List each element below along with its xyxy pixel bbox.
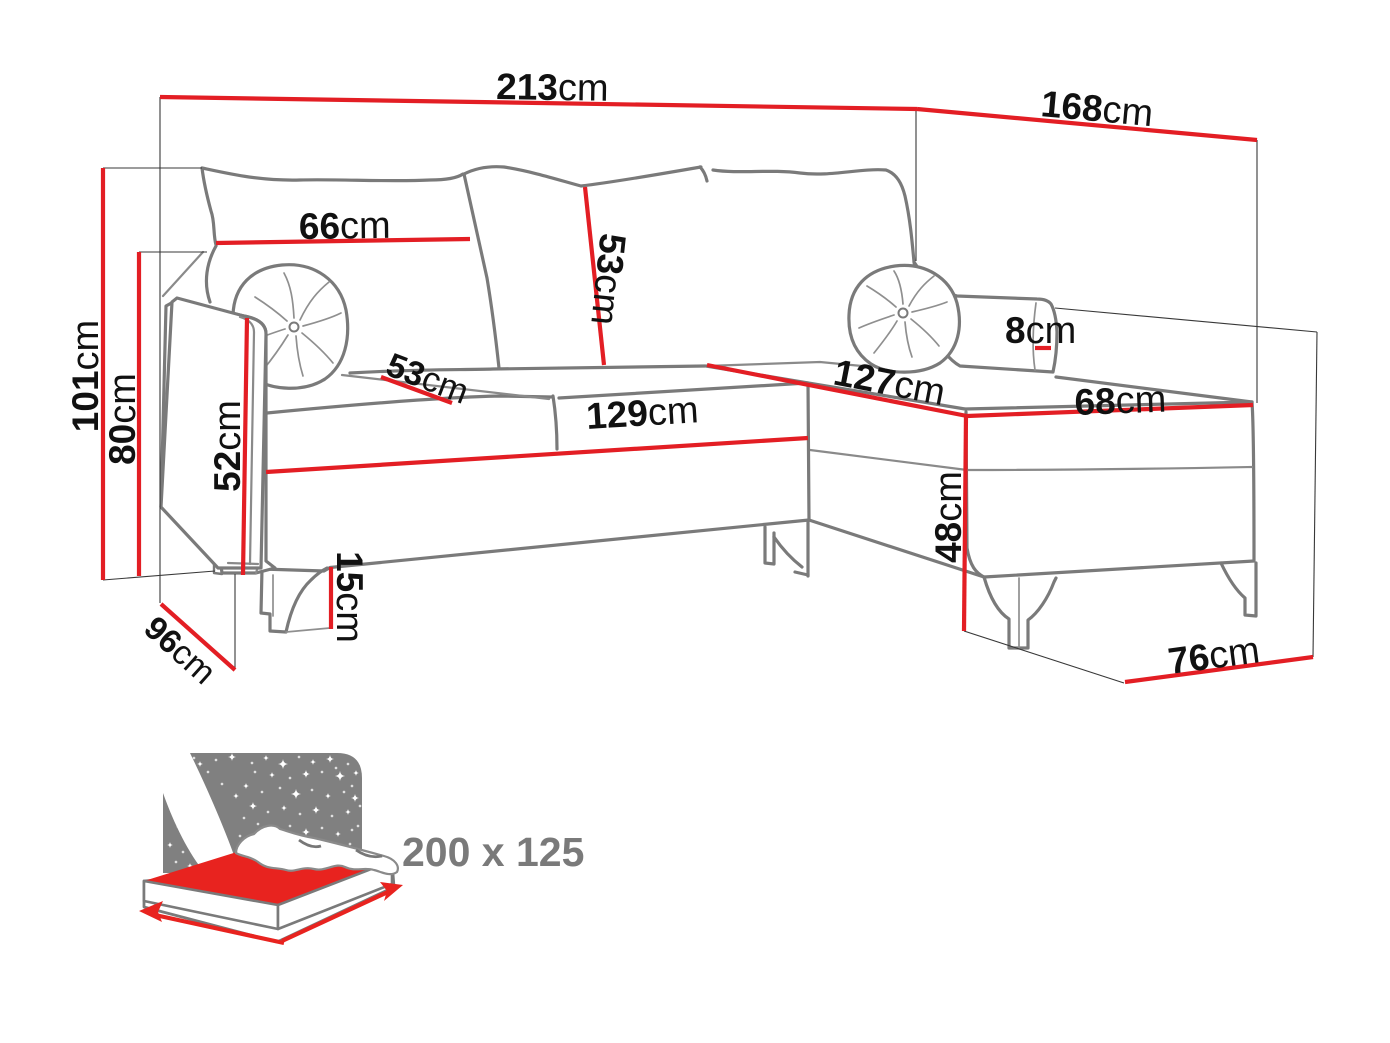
svg-text:66cm: 66cm (299, 205, 391, 248)
svg-text:8cm: 8cm (1005, 310, 1076, 352)
svg-text:52cm: 52cm (207, 400, 249, 492)
svg-text:200 x 125: 200 x 125 (402, 829, 584, 875)
svg-text:101cm: 101cm (65, 320, 107, 432)
svg-text:168cm: 168cm (1039, 83, 1155, 135)
svg-text:15cm: 15cm (328, 551, 370, 643)
svg-text:213cm: 213cm (496, 66, 609, 110)
svg-text:129cm: 129cm (585, 389, 700, 438)
svg-text:76cm: 76cm (1166, 629, 1263, 683)
svg-text:48cm: 48cm (928, 471, 970, 563)
svg-text:68cm: 68cm (1074, 378, 1167, 423)
svg-text:80cm: 80cm (102, 373, 144, 465)
